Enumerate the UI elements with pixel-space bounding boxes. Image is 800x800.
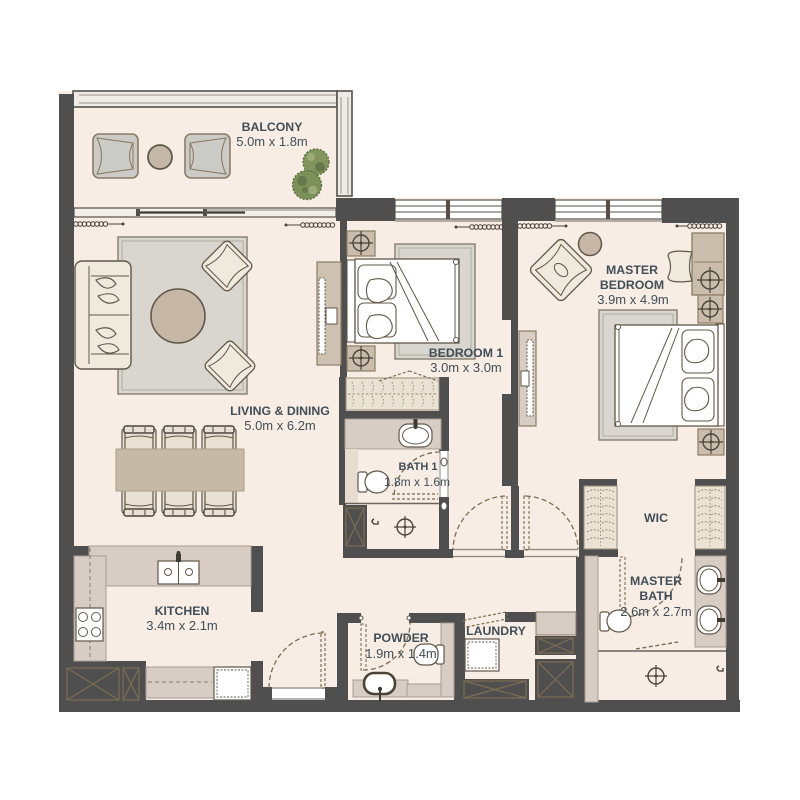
- svg-text:5.0m x 1.8m: 5.0m x 1.8m: [236, 134, 308, 149]
- svg-text:LIVING & DINING: LIVING & DINING: [230, 404, 330, 418]
- svg-text:POWDER: POWDER: [373, 631, 428, 645]
- svg-text:3.9m x 4.9m: 3.9m x 4.9m: [597, 292, 669, 307]
- svg-text:LAUNDRY: LAUNDRY: [466, 624, 526, 638]
- svg-text:5.0m x 6.2m: 5.0m x 6.2m: [244, 418, 316, 433]
- svg-text:1.8m x 1.6m: 1.8m x 1.6m: [384, 475, 450, 489]
- svg-text:BEDROOM: BEDROOM: [600, 278, 664, 292]
- svg-text:MASTER: MASTER: [630, 574, 682, 588]
- svg-text:BALCONY: BALCONY: [242, 120, 303, 134]
- svg-text:3.0m x 3.0m: 3.0m x 3.0m: [430, 360, 502, 375]
- svg-text:MASTER: MASTER: [606, 263, 658, 277]
- svg-text:KITCHEN: KITCHEN: [155, 604, 210, 618]
- svg-text:BATH 1: BATH 1: [399, 461, 438, 473]
- svg-text:2.6m x 2.7m: 2.6m x 2.7m: [620, 604, 692, 619]
- svg-text:BATH: BATH: [639, 589, 672, 603]
- svg-text:3.4m x 2.1m: 3.4m x 2.1m: [146, 618, 218, 633]
- svg-text:BEDROOM 1: BEDROOM 1: [429, 346, 504, 360]
- svg-text:1.9m x 1.4m: 1.9m x 1.4m: [365, 646, 437, 661]
- svg-text:WIC: WIC: [644, 511, 668, 525]
